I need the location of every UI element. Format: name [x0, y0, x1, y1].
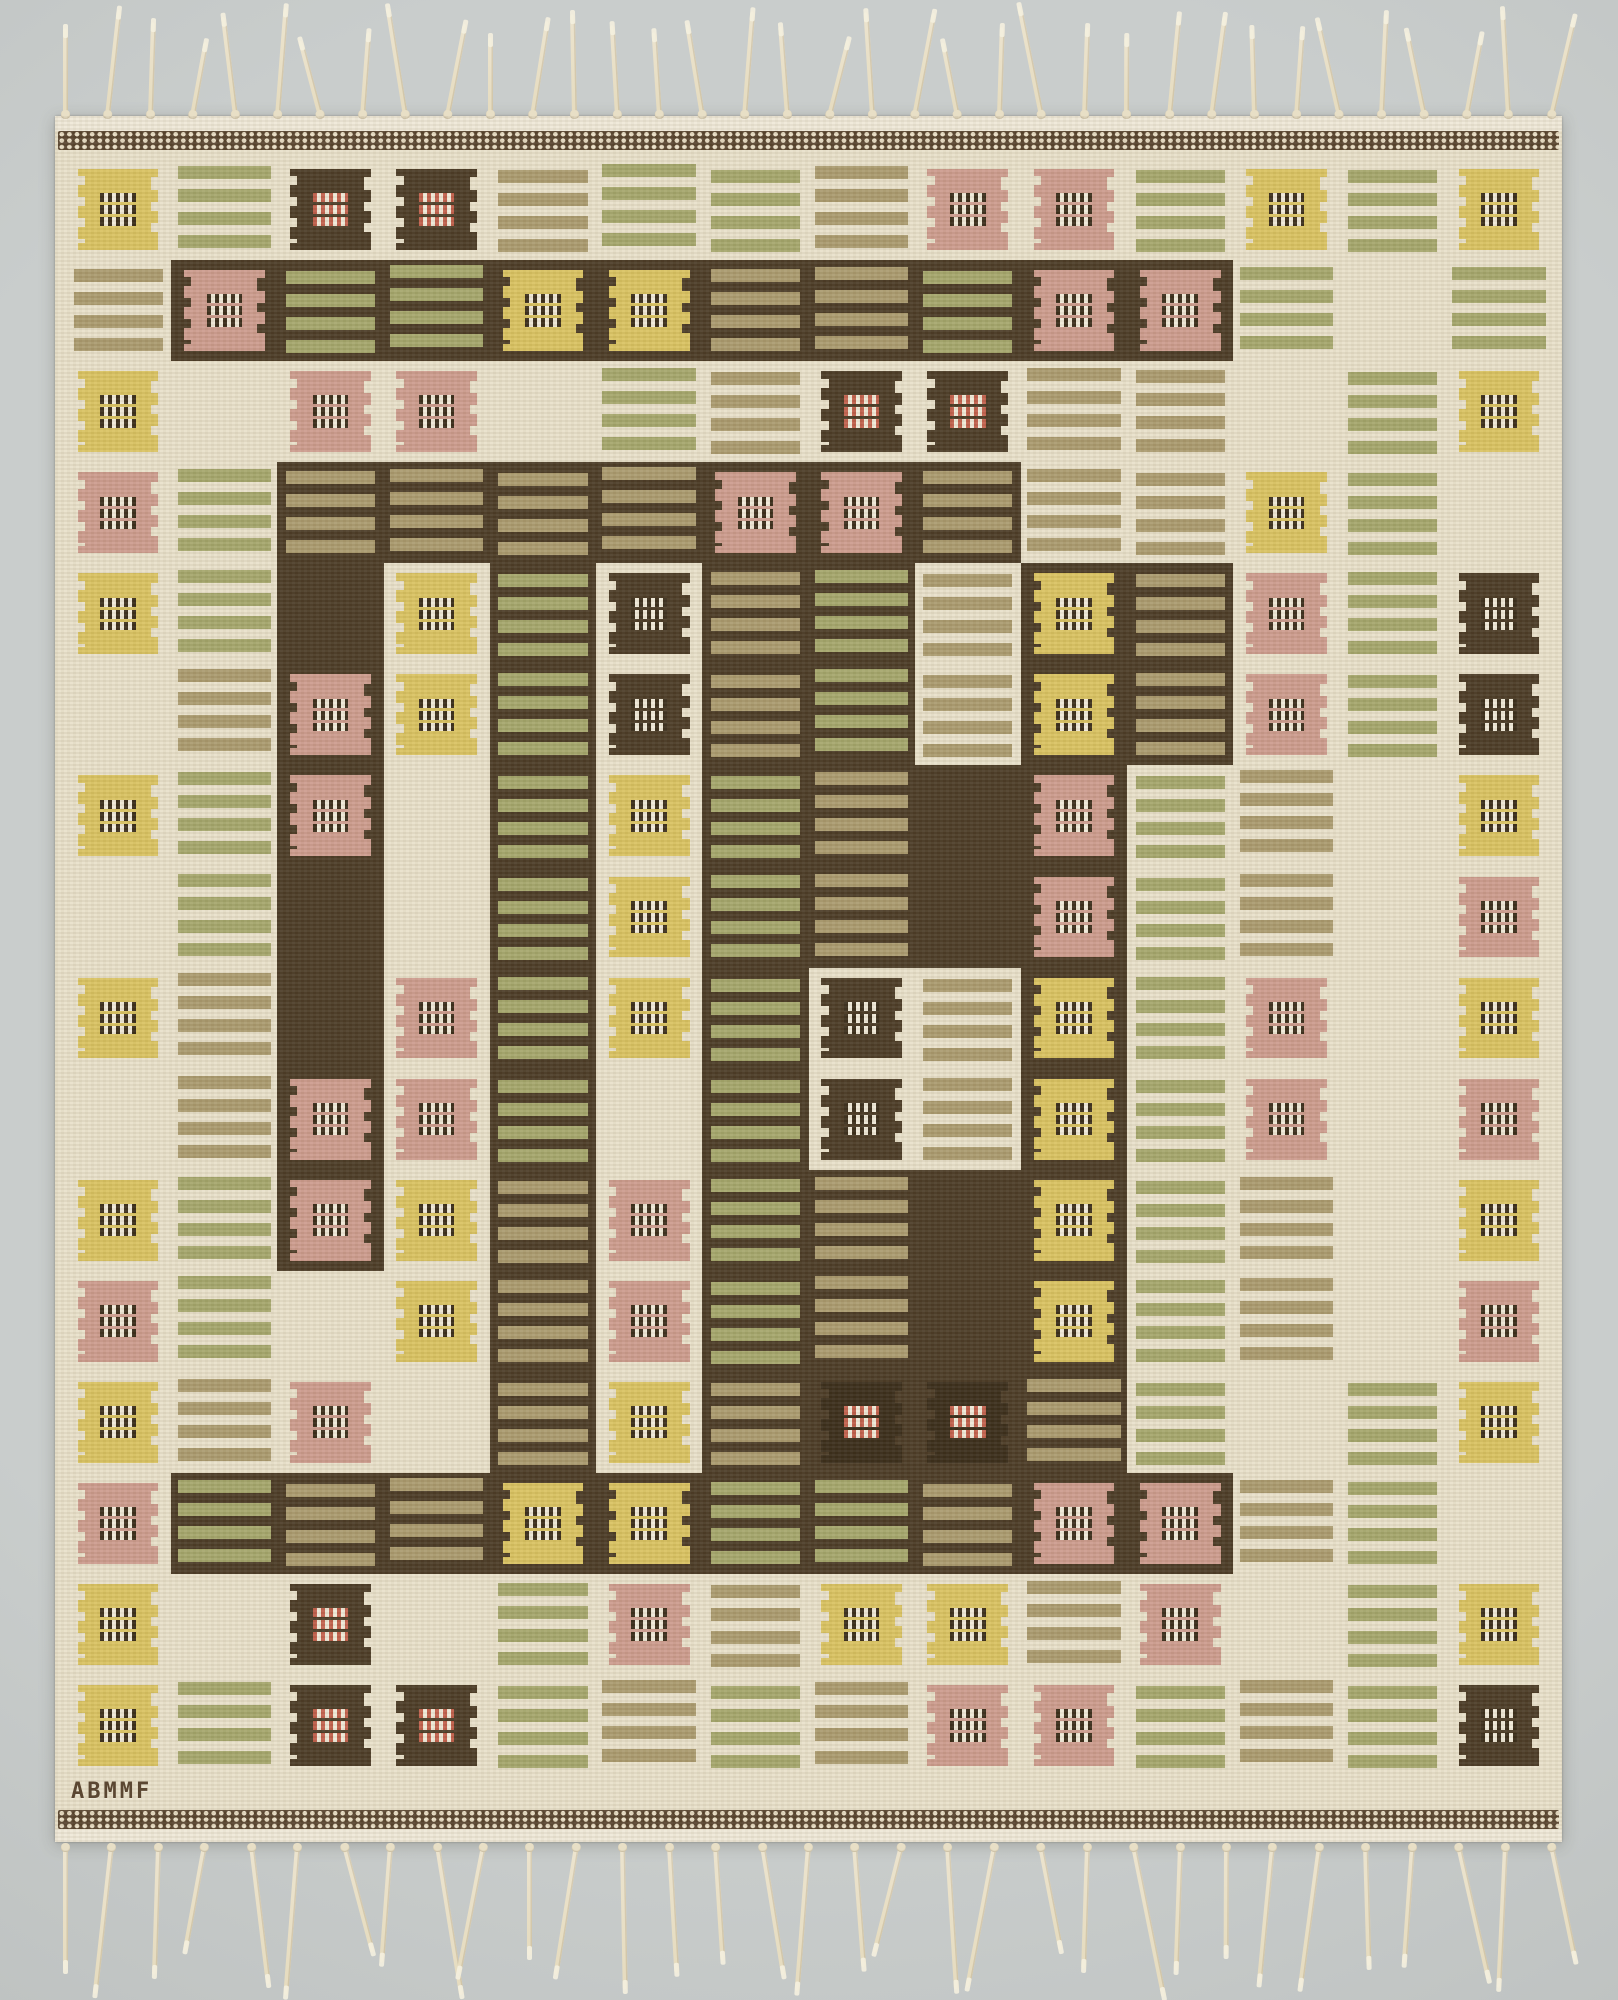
motif-square-cell [1021, 1271, 1127, 1372]
notched-motif-square [1034, 1281, 1115, 1362]
dash-grid-center [631, 1406, 667, 1438]
dash-grid-center [313, 1406, 349, 1438]
dash-grid-center [950, 1406, 986, 1438]
striped-block-cell [702, 1372, 808, 1473]
dotted-border-band-top [58, 131, 1559, 150]
striped-block-cell [702, 1675, 808, 1776]
stripe-bars [178, 772, 271, 859]
plain-cell [277, 1271, 383, 1372]
dash-grid-center [1269, 193, 1305, 225]
motif-square-cell [65, 361, 171, 462]
notched-motif-square [1459, 1584, 1540, 1665]
striped-block-cell [1021, 462, 1127, 563]
dash-grid-center [1056, 1204, 1092, 1236]
stripe-bars [74, 265, 163, 356]
dash-grid-center [1481, 1709, 1517, 1741]
notched-motif-square [1034, 270, 1115, 351]
motif-square-cell [490, 260, 596, 361]
notched-motif-square [1140, 1483, 1221, 1564]
notched-motif-square [609, 1180, 690, 1261]
notched-motif-square [290, 371, 371, 452]
motif-square-cell [1446, 866, 1552, 967]
stripe-bars [1240, 1680, 1333, 1771]
stripe-bars [923, 975, 1012, 1062]
fringe-tassel [148, 22, 156, 117]
fringe-tassel [379, 1846, 393, 1963]
motif-square-cell [1021, 159, 1127, 260]
striped-block-cell [490, 462, 596, 563]
stripe-bars [1136, 469, 1225, 556]
striped-block-cell [702, 260, 808, 361]
fringe-tassel [283, 1846, 300, 1996]
fringe-bottom [63, 1846, 1554, 1998]
notched-motif-square [609, 775, 690, 856]
stripe-bars [178, 1076, 271, 1163]
motif-square-cell [1446, 1170, 1552, 1271]
motif-square-cell [1233, 462, 1339, 563]
notched-motif-square [1034, 169, 1115, 250]
dash-grid-center [313, 800, 349, 832]
stripe-bars [498, 1682, 587, 1769]
dash-grid-center [1269, 1103, 1305, 1135]
plain-cell [1446, 1473, 1552, 1574]
stripe-bars [1136, 366, 1225, 457]
dash-grid-center [207, 294, 243, 326]
notched-motif-square [1246, 674, 1327, 755]
striped-block-cell [1233, 1271, 1339, 1372]
stripe-bars [602, 368, 695, 455]
motif-square-cell [702, 462, 808, 563]
stripe-bars [286, 1480, 375, 1567]
dash-grid-center [313, 1608, 349, 1640]
stripe-bars [602, 467, 695, 558]
dash-grid-center [313, 395, 349, 427]
notched-motif-square [78, 1180, 159, 1261]
dash-grid-center [1481, 598, 1517, 630]
notched-motif-square [1459, 775, 1540, 856]
motif-square-cell [65, 159, 171, 260]
striped-block-cell [702, 664, 808, 765]
notched-motif-square [290, 169, 371, 250]
stripe-bars [711, 1278, 800, 1365]
dash-grid-center [631, 1002, 667, 1034]
fringe-top [63, 6, 1554, 116]
notched-motif-square [1034, 1180, 1115, 1261]
stripe-bars [1240, 1177, 1333, 1264]
fringe-tassel [570, 14, 577, 116]
plain-cell [65, 1069, 171, 1170]
notched-motif-square [396, 1079, 477, 1160]
motif-square-cell [1021, 1069, 1127, 1170]
notched-motif-square [821, 1079, 902, 1160]
stripe-bars [711, 1581, 800, 1668]
dash-grid-center [419, 1204, 455, 1236]
striped-block-cell [1340, 1372, 1446, 1473]
motif-square-cell [384, 563, 490, 664]
striped-block-cell [1233, 866, 1339, 967]
notched-motif-square [609, 674, 690, 755]
plain-cell [915, 1170, 1021, 1271]
stripe-bars [1348, 166, 1437, 253]
motif-square-cell [65, 1675, 171, 1776]
notched-motif-square [609, 1281, 690, 1362]
notched-motif-square [78, 1382, 159, 1463]
notched-motif-square [1246, 169, 1327, 250]
fringe-tassel [1224, 1846, 1229, 1955]
dash-grid-center [631, 1507, 667, 1539]
dash-grid-center [1056, 1002, 1092, 1034]
fringe-tassel [385, 7, 408, 116]
striped-block-cell [1127, 866, 1233, 967]
striped-block-cell [490, 1271, 596, 1372]
fringe-tassel [530, 21, 550, 116]
notched-motif-square [821, 1382, 902, 1463]
fringe-tassel [852, 1846, 866, 1968]
notched-motif-square [78, 1483, 159, 1564]
striped-block-cell [596, 159, 702, 260]
fringe-tassel [1456, 1845, 1491, 1980]
striped-block-cell [1127, 462, 1233, 563]
fringe-tassel [965, 1846, 997, 1989]
motif-square-cell [65, 765, 171, 866]
notched-motif-square [78, 1584, 159, 1665]
dash-grid-center [419, 598, 455, 630]
fringe-tassel [1167, 15, 1182, 116]
striped-block-cell [1233, 765, 1339, 866]
stripe-bars [178, 1379, 271, 1466]
motif-square-cell [1021, 664, 1127, 765]
stripe-bars [602, 1680, 695, 1771]
notched-motif-square [927, 169, 1008, 250]
dash-grid-center [844, 395, 880, 427]
motif-square-cell [809, 968, 915, 1069]
striped-block-cell [490, 1069, 596, 1170]
fringe-tassel [342, 1845, 375, 1953]
motif-square-cell [65, 1372, 171, 1473]
notched-motif-square [927, 1382, 1008, 1463]
notched-motif-square [609, 978, 690, 1059]
motif-square-cell [1021, 765, 1127, 866]
notched-motif-square [821, 978, 902, 1059]
motif-square-cell [65, 1574, 171, 1675]
motif-square-cell [915, 1574, 1021, 1675]
motif-square-cell [1446, 1372, 1552, 1473]
notched-motif-square [609, 1584, 690, 1665]
striped-block-cell [596, 361, 702, 462]
fringe-tassel [760, 1846, 786, 1976]
stripe-bars [711, 975, 800, 1062]
dash-grid-center [1481, 1406, 1517, 1438]
motif-square-cell [596, 1271, 702, 1372]
motif-square-cell [1233, 563, 1339, 664]
notched-motif-square [1246, 1079, 1327, 1160]
striped-block-cell [1340, 664, 1446, 765]
dash-grid-center [419, 1305, 455, 1337]
stripe-bars [498, 874, 587, 961]
stripe-bars [1136, 1076, 1225, 1163]
dash-grid-center [950, 193, 986, 225]
notched-motif-square [78, 472, 159, 553]
stripe-bars [602, 164, 695, 255]
striped-block-cell [171, 1170, 277, 1271]
dash-grid-center [1162, 294, 1198, 326]
notched-motif-square [184, 270, 265, 351]
dash-grid-center [100, 1204, 136, 1236]
plain-cell [1340, 1069, 1446, 1170]
plain-cell [277, 866, 383, 967]
fringe-tassel [1401, 1846, 1414, 1964]
dash-grid-center [1481, 901, 1517, 933]
striped-block-cell [171, 1271, 277, 1372]
dash-grid-center [100, 800, 136, 832]
dash-grid-center [738, 497, 774, 529]
dash-grid-center [1056, 699, 1092, 731]
striped-block-cell [171, 968, 277, 1069]
notched-motif-square [1459, 674, 1540, 755]
striped-block-cell [171, 159, 277, 260]
stripe-bars [711, 671, 800, 758]
dash-grid-center [1162, 1608, 1198, 1640]
motif-square-cell [171, 260, 277, 361]
stripe-bars [498, 469, 587, 556]
dash-grid-center [1481, 1305, 1517, 1337]
dash-grid-center [1269, 699, 1305, 731]
stripe-bars [1240, 1480, 1333, 1567]
notched-motif-square [1459, 573, 1540, 654]
fringe-tassel [1404, 31, 1427, 116]
fringe-tassel [1131, 1846, 1166, 1998]
dash-grid-center [631, 1608, 667, 1640]
stripe-bars [390, 469, 483, 556]
motif-square-cell [1021, 563, 1127, 664]
fringe-tassel [527, 1846, 532, 1956]
dash-grid-center [1481, 1608, 1517, 1640]
fringe-tassel [1500, 10, 1511, 116]
motif-square-cell [809, 1574, 915, 1675]
fringe-tassel [249, 1846, 271, 1984]
stripe-bars [178, 469, 271, 556]
stripe-bars [1348, 1682, 1437, 1769]
plain-cell [1340, 260, 1446, 361]
striped-block-cell [1340, 1473, 1446, 1574]
dash-grid-center [525, 294, 561, 326]
striped-block-cell [809, 260, 915, 361]
striped-block-cell [1233, 1170, 1339, 1271]
stripe-bars [498, 669, 587, 760]
dash-grid-center [313, 699, 349, 731]
stripe-bars [815, 1480, 908, 1567]
striped-block-cell [809, 866, 915, 967]
dash-grid-center [950, 1709, 986, 1741]
fringe-tassel [456, 1846, 486, 1976]
dash-grid-center [100, 1507, 136, 1539]
motif-square-cell [1021, 866, 1127, 967]
fringe-tassel [872, 1845, 904, 1952]
striped-block-cell [809, 765, 915, 866]
striped-block-cell [1340, 361, 1446, 462]
motif-square-cell [809, 361, 915, 462]
fringe-tassel [1496, 1846, 1508, 1988]
motif-square-cell [277, 1069, 383, 1170]
notched-motif-square [396, 1281, 477, 1362]
stripe-bars [1240, 267, 1333, 354]
fringe-tassel [1257, 1846, 1275, 1984]
striped-block-cell [809, 159, 915, 260]
fringe-tassel [742, 11, 755, 116]
fringe-tassel [445, 24, 468, 117]
plain-cell [1340, 1170, 1446, 1271]
motif-square-cell [915, 1372, 1021, 1473]
stripe-bars [923, 1074, 1012, 1165]
stripe-bars [711, 368, 800, 455]
fringe-tassel [685, 24, 705, 117]
fringe-tassel [912, 12, 937, 117]
motif-square-cell [1127, 260, 1233, 361]
notched-motif-square [1034, 775, 1115, 856]
plain-cell [277, 968, 383, 1069]
striped-block-cell [1127, 664, 1233, 765]
striped-block-cell [277, 462, 383, 563]
stripe-bars [498, 772, 587, 859]
notched-motif-square [290, 1180, 371, 1261]
plain-cell [384, 1372, 490, 1473]
motif-square-cell [277, 1574, 383, 1675]
stripe-bars [178, 874, 271, 961]
plain-cell [1446, 462, 1552, 563]
stripe-bars [815, 1682, 908, 1769]
motif-square-cell [384, 159, 490, 260]
striped-block-cell [1127, 1170, 1233, 1271]
striped-block-cell [490, 1170, 596, 1271]
stripe-bars [815, 1177, 908, 1264]
plain-cell [384, 765, 490, 866]
striped-block-cell [915, 664, 1021, 765]
striped-block-cell [171, 1675, 277, 1776]
stripe-bars [178, 1276, 271, 1367]
dash-grid-center [313, 1204, 349, 1236]
notched-motif-square [821, 371, 902, 452]
motif-square-cell [65, 563, 171, 664]
notched-motif-square [1034, 1483, 1115, 1564]
notched-motif-square [927, 1685, 1008, 1766]
fringe-tassel [1173, 1846, 1182, 1971]
striped-block-cell [1233, 1675, 1339, 1776]
plain-cell [277, 563, 383, 664]
notched-motif-square [396, 1180, 477, 1261]
stripe-bars [498, 166, 587, 253]
fringe-tassel [360, 32, 371, 116]
dash-grid-center [1056, 800, 1092, 832]
motif-square-cell [1446, 765, 1552, 866]
stripe-bars [178, 973, 271, 1064]
notched-motif-square [821, 472, 902, 553]
plain-cell [596, 1069, 702, 1170]
motif-square-cell [809, 462, 915, 563]
motif-square-cell [1446, 968, 1552, 1069]
stripe-bars [498, 973, 587, 1064]
stripe-bars [711, 1076, 800, 1163]
fringe-tassel [1082, 27, 1090, 116]
plain-cell [1340, 765, 1446, 866]
dash-grid-center [100, 497, 136, 529]
motif-square-cell [1233, 1069, 1339, 1170]
striped-block-cell [490, 563, 596, 664]
motif-square-cell [277, 1675, 383, 1776]
notched-motif-square [609, 1382, 690, 1463]
fringe-tassel [652, 32, 662, 116]
stripe-bars [498, 1579, 587, 1670]
stripe-bars [390, 265, 483, 356]
motif-square-cell [384, 361, 490, 462]
striped-block-cell [809, 1170, 915, 1271]
fringe-tassel [1294, 30, 1305, 117]
dash-grid-center [631, 1204, 667, 1236]
stripe-bars [1136, 1682, 1225, 1769]
notched-motif-square [78, 169, 159, 250]
motif-square-cell [277, 664, 383, 765]
notched-motif-square [1459, 1685, 1540, 1766]
fringe-tassel [190, 42, 208, 117]
striped-block-cell [277, 1473, 383, 1574]
motif-square-cell [596, 968, 702, 1069]
motif-square-cell [1446, 159, 1552, 260]
striped-block-cell [490, 866, 596, 967]
fringe-tassel [940, 42, 959, 117]
notched-motif-square [1459, 1281, 1540, 1362]
motif-square-cell [1021, 260, 1127, 361]
motif-square-cell [596, 1473, 702, 1574]
notched-motif-square [1140, 270, 1221, 351]
plain-cell [171, 1574, 277, 1675]
motif-square-cell [65, 462, 171, 563]
striped-block-cell [171, 462, 277, 563]
fringe-tassel [795, 1846, 811, 1992]
notched-motif-square [503, 1483, 584, 1564]
stripe-bars [1136, 1379, 1225, 1466]
dash-grid-center [631, 800, 667, 832]
stripe-bars [711, 871, 800, 962]
dash-grid-center [844, 497, 880, 529]
striped-block-cell [384, 1473, 490, 1574]
motif-square-cell [596, 260, 702, 361]
dash-grid-center [844, 1406, 880, 1438]
fringe-tassel [997, 27, 1005, 116]
notched-motif-square [396, 1685, 477, 1766]
striped-block-cell [490, 159, 596, 260]
striped-block-cell [490, 1675, 596, 1776]
striped-block-cell [1127, 1372, 1233, 1473]
stripe-bars [1136, 874, 1225, 961]
stripe-bars [498, 570, 587, 657]
stripe-bars [1348, 568, 1437, 659]
motif-square-cell [65, 1271, 171, 1372]
plain-cell [490, 361, 596, 462]
striped-block-cell [809, 1675, 915, 1776]
motif-square-cell [596, 664, 702, 765]
striped-block-cell [702, 361, 808, 462]
rug-pattern-grid [65, 159, 1552, 1776]
motif-square-cell [277, 765, 383, 866]
stripe-bars [1027, 1379, 1120, 1466]
motif-square-cell [596, 563, 702, 664]
stripe-bars [1136, 570, 1225, 657]
rug: ABMMF [55, 0, 1562, 2000]
striped-block-cell [702, 1271, 808, 1372]
dash-grid-center [313, 193, 349, 225]
motif-square-cell [490, 1473, 596, 1574]
dash-grid-center [1056, 1507, 1092, 1539]
striped-block-cell [809, 664, 915, 765]
